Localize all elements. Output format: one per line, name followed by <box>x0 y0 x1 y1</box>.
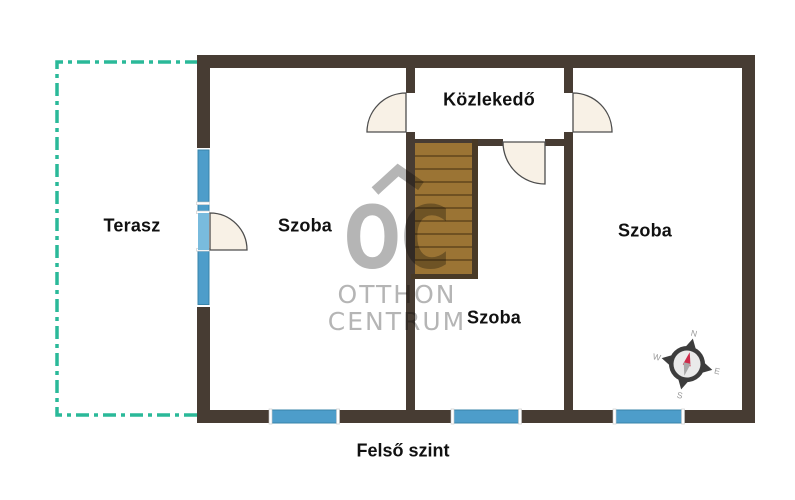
logo-monogram: OC <box>344 189 450 290</box>
label-room-middle: Szoba <box>467 308 521 329</box>
compass-label-s: S <box>676 390 684 401</box>
label-room-right: Szoba <box>618 221 672 242</box>
floorplan-canvas: OC OTTHON CENTRUM N E S W <box>0 0 795 500</box>
hallway-door-left-swing <box>367 93 406 132</box>
hallway-door-middle-swing <box>503 142 545 184</box>
terrace-outline <box>57 62 198 415</box>
window-left-lower <box>198 251 209 305</box>
watermark-line2: CENTRUM <box>328 307 466 336</box>
floorplan-drawing: OC OTTHON CENTRUM N E S W <box>0 0 795 500</box>
logo-oc-text: OC <box>344 189 450 290</box>
wall-top <box>198 55 755 68</box>
label-room-left: Szoba <box>278 216 332 237</box>
otthon-centrum-watermark: OC OTTHON CENTRUM <box>328 170 466 336</box>
window-bottom-3 <box>615 410 683 423</box>
wall-interior-b <box>564 132 573 410</box>
window-left-upper <box>198 150 209 202</box>
label-hallway: Közlekedő <box>443 90 535 111</box>
compass-label-e: E <box>713 365 721 376</box>
label-floor-level: Felső szint <box>356 441 449 462</box>
watermark-line1: OTTHON <box>338 280 457 309</box>
compass-label-n: N <box>690 328 698 339</box>
compass-label-w: W <box>652 351 662 363</box>
terrace-door-leaf <box>198 213 209 250</box>
compass-rose: N E S W <box>645 321 729 408</box>
wall-interior-c-right <box>545 139 573 146</box>
wall-right <box>742 55 755 423</box>
hallway-door-right-swing <box>573 93 612 132</box>
terrace-door-swing <box>210 213 247 250</box>
window-bottom-2 <box>453 410 520 423</box>
wall-interior-a-top <box>406 68 415 93</box>
label-terrace: Terasz <box>104 216 161 237</box>
window-bottom-1 <box>271 410 338 423</box>
wall-interior-b-top <box>564 68 573 93</box>
